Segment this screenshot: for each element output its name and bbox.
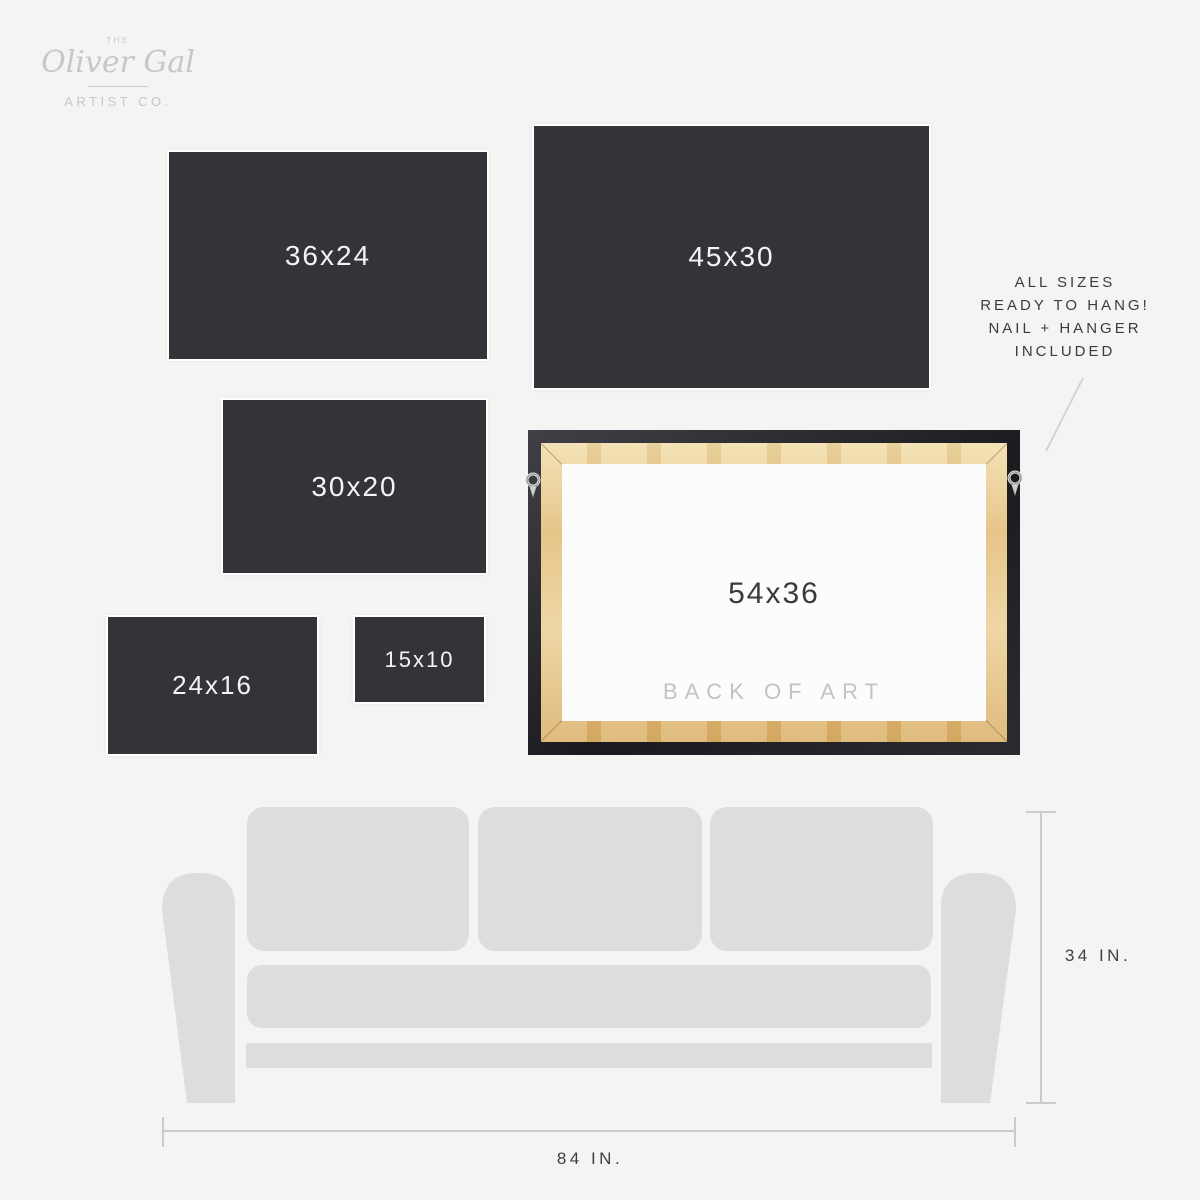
size-label: 36x24 bbox=[285, 240, 371, 272]
mitre-joint bbox=[541, 720, 563, 742]
size-swatch-45x30: 45x30 bbox=[532, 124, 931, 390]
mitre-joint bbox=[985, 443, 1007, 465]
d-ring-hanger-icon bbox=[1006, 468, 1024, 500]
couch-height-label: 34 IN. bbox=[1052, 946, 1144, 966]
note-line: INCLUDED bbox=[965, 340, 1165, 363]
d-ring-hanger-icon bbox=[524, 470, 542, 502]
couch-back-cushion bbox=[247, 807, 469, 951]
back-of-art-frame: 54x36 BACK OF ART bbox=[528, 430, 1020, 755]
back-of-art-caption: BACK OF ART bbox=[528, 679, 1020, 705]
couch-base bbox=[246, 1043, 932, 1068]
brand-divider bbox=[88, 86, 148, 87]
size-swatch-36x24: 36x24 bbox=[167, 150, 489, 361]
size-guide-page: THE Oliver Gal ARTIST CO. 36x24 45x30 30… bbox=[0, 0, 1200, 1200]
size-label: 24x16 bbox=[172, 670, 253, 701]
brand-logo: THE Oliver Gal ARTIST CO. bbox=[30, 36, 206, 109]
couch-back-cushion bbox=[710, 807, 933, 951]
ready-to-hang-note: ALL SIZES READY TO HANG! NAIL + HANGER I… bbox=[965, 271, 1165, 363]
couch-width-label: 84 IN. bbox=[530, 1149, 650, 1169]
note-line: NAIL + HANGER bbox=[965, 317, 1165, 340]
brand-name: Oliver Gal bbox=[30, 46, 206, 80]
size-swatch-30x20: 30x20 bbox=[221, 398, 488, 575]
mitre-joint bbox=[541, 443, 563, 465]
note-pointer-line bbox=[1046, 378, 1083, 451]
brand-the: THE bbox=[30, 36, 206, 45]
couch-back-cushion bbox=[478, 807, 702, 951]
frame-size-label: 54x36 bbox=[528, 577, 1020, 611]
couch-seat-cushion bbox=[247, 965, 931, 1028]
size-swatch-15x10: 15x10 bbox=[353, 615, 486, 704]
couch-right-arm bbox=[941, 873, 1016, 1103]
couch-left-arm bbox=[162, 873, 235, 1103]
brand-subtitle: ARTIST CO. bbox=[30, 94, 206, 109]
size-swatch-24x16: 24x16 bbox=[106, 615, 319, 756]
note-line: READY TO HANG! bbox=[965, 294, 1165, 317]
size-label: 15x10 bbox=[385, 647, 455, 673]
width-dimension-line bbox=[163, 1117, 1015, 1147]
size-label: 30x20 bbox=[311, 471, 397, 503]
mitre-joint bbox=[985, 720, 1007, 742]
note-line: ALL SIZES bbox=[965, 271, 1165, 294]
size-label: 45x30 bbox=[688, 241, 774, 273]
